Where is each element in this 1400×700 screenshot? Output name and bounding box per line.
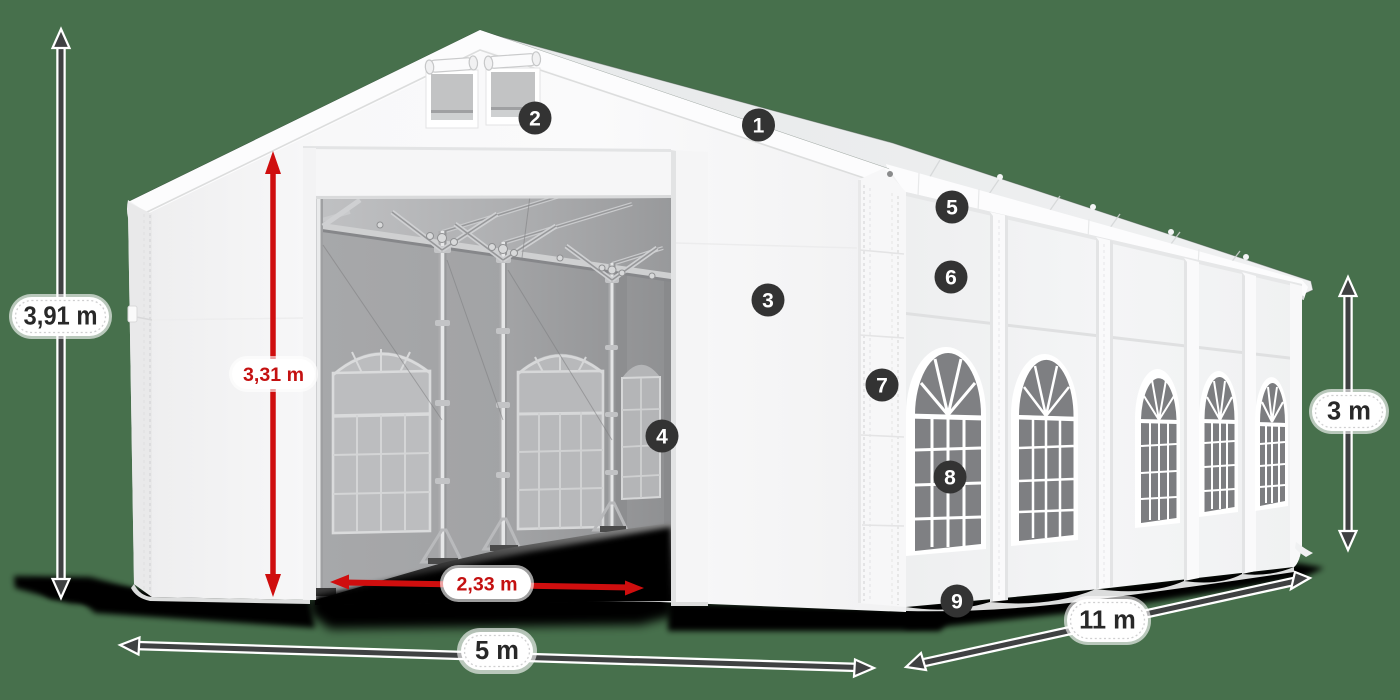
svg-text:5 m: 5 m (475, 637, 519, 665)
svg-text:7: 7 (876, 375, 888, 398)
svg-text:8: 8 (944, 467, 956, 490)
svg-text:6: 6 (945, 267, 957, 290)
svg-text:2: 2 (529, 108, 541, 131)
svg-text:11 m: 11 m (1079, 607, 1136, 635)
svg-text:5: 5 (946, 197, 958, 220)
svg-text:3,91 m: 3,91 m (24, 303, 98, 331)
svg-text:3,31 m: 3,31 m (243, 364, 304, 386)
svg-text:1: 1 (753, 115, 765, 138)
svg-text:9: 9 (951, 591, 963, 614)
svg-text:3 m: 3 m (1327, 398, 1371, 426)
svg-text:4: 4 (656, 426, 668, 449)
svg-text:2,33 m: 2,33 m (457, 574, 518, 596)
svg-text:3: 3 (762, 290, 774, 313)
